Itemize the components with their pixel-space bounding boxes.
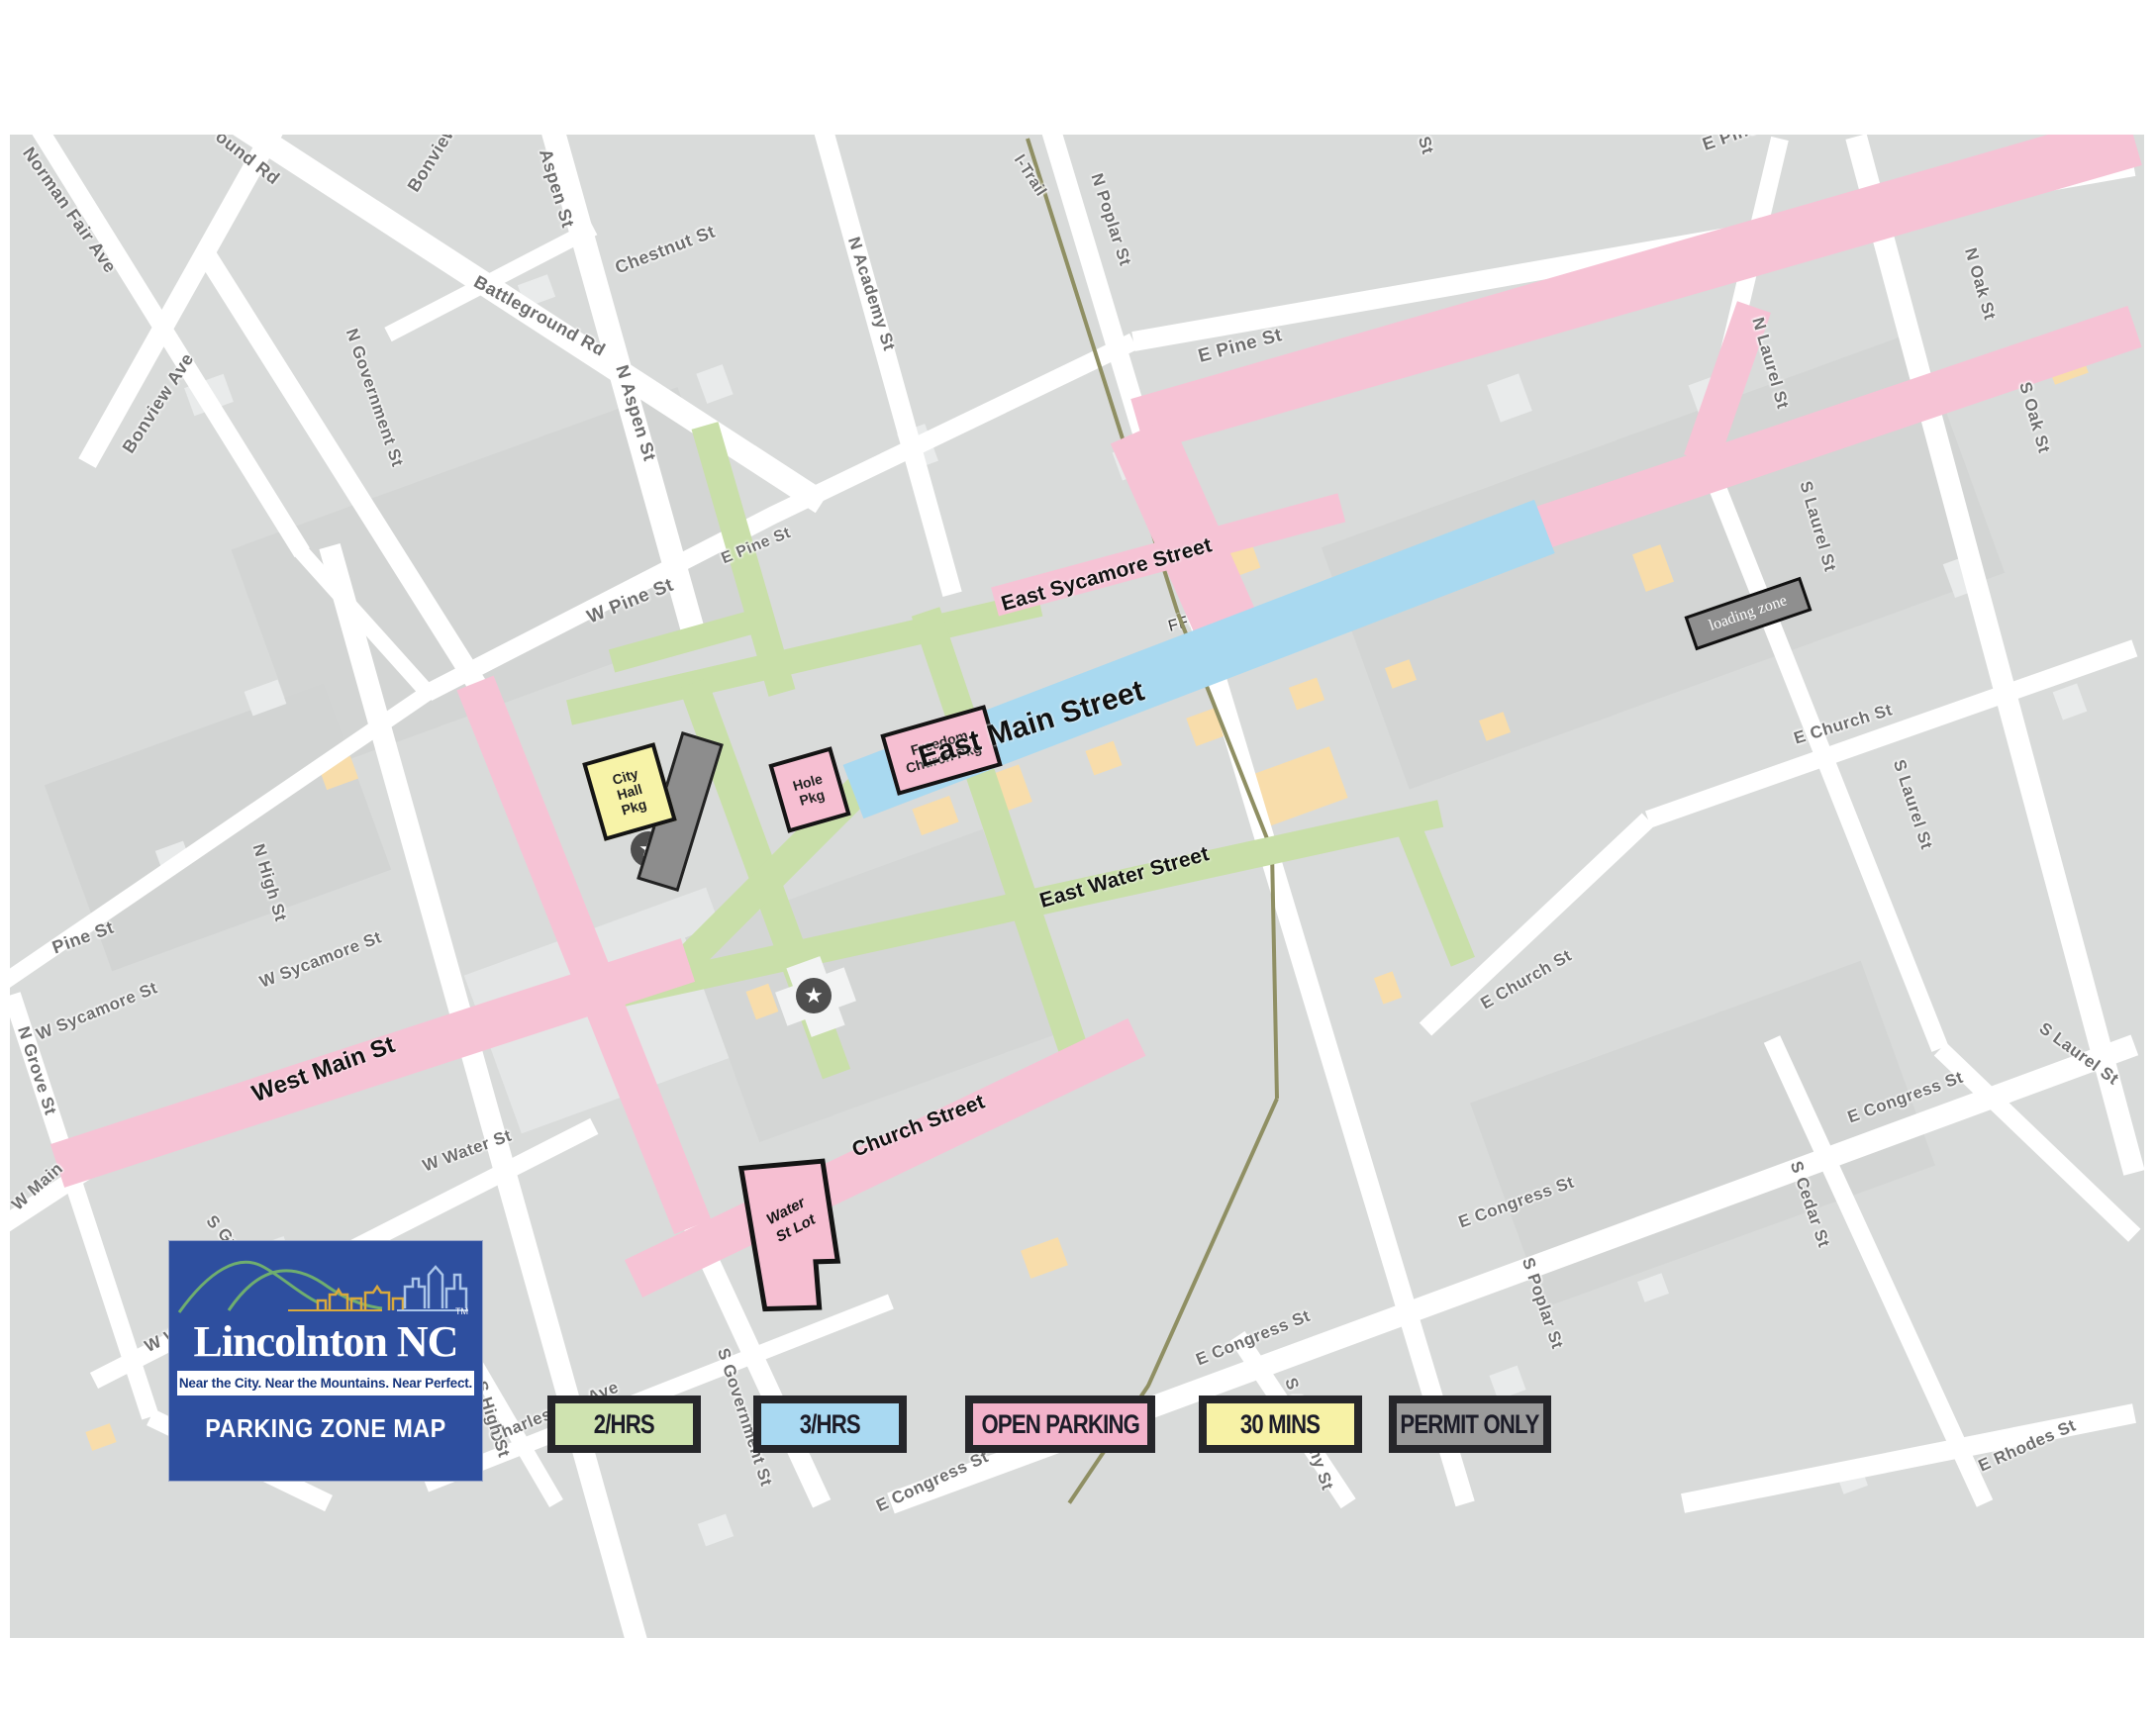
legend-item-2-hrs: 2/HRS	[547, 1396, 701, 1453]
city-logo: TM Lincolnton NC Near the City. Near the…	[168, 1240, 483, 1482]
legend-item-30-mins: 30 MINS	[1199, 1396, 1362, 1453]
trademark-symbol: TM	[455, 1306, 468, 1316]
logo-subtitle: PARKING ZONE MAP	[185, 1413, 466, 1444]
logo-title: Lincolnton NC	[169, 1320, 482, 1364]
parking-zone-map-page: ★ ★ CityHallPkg HolePkg FreedomChurch Pk…	[0, 0, 2156, 1733]
logo-tagline: Near the City. Near the Mountains. Near …	[177, 1371, 474, 1396]
logo-skyline-art: TM	[169, 1241, 482, 1326]
legend-item-open-parking: OPEN PARKING	[965, 1396, 1155, 1453]
legend-item-permit-only: PERMIT ONLY	[1389, 1396, 1551, 1453]
legend-item-3-hrs: 3/HRS	[753, 1396, 907, 1453]
mountains-and-skyline-icon	[169, 1241, 482, 1326]
